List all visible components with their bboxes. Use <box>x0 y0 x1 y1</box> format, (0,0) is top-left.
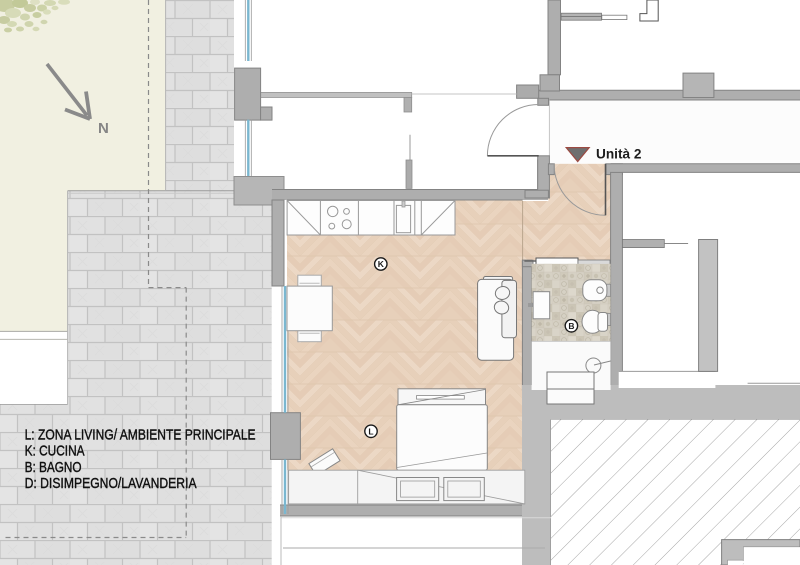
svg-text:L: ZONA LIVING/ AMBIENTE PRINC: L: ZONA LIVING/ AMBIENTE PRINCIPALE <box>25 428 256 444</box>
svg-text:Unità 2: Unità 2 <box>596 146 642 162</box>
svg-text:K: CUCINA: K: CUCINA <box>25 444 85 460</box>
svg-text:N: N <box>98 120 109 137</box>
svg-text:L: L <box>368 427 373 437</box>
svg-text:B: B <box>568 321 574 331</box>
svg-text:D: DISIMPEGNO/LAVANDERIA: D: DISIMPEGNO/LAVANDERIA <box>25 476 197 492</box>
svg-text:K: K <box>378 259 385 269</box>
svg-text:B: BAGNO: B: BAGNO <box>25 460 82 476</box>
